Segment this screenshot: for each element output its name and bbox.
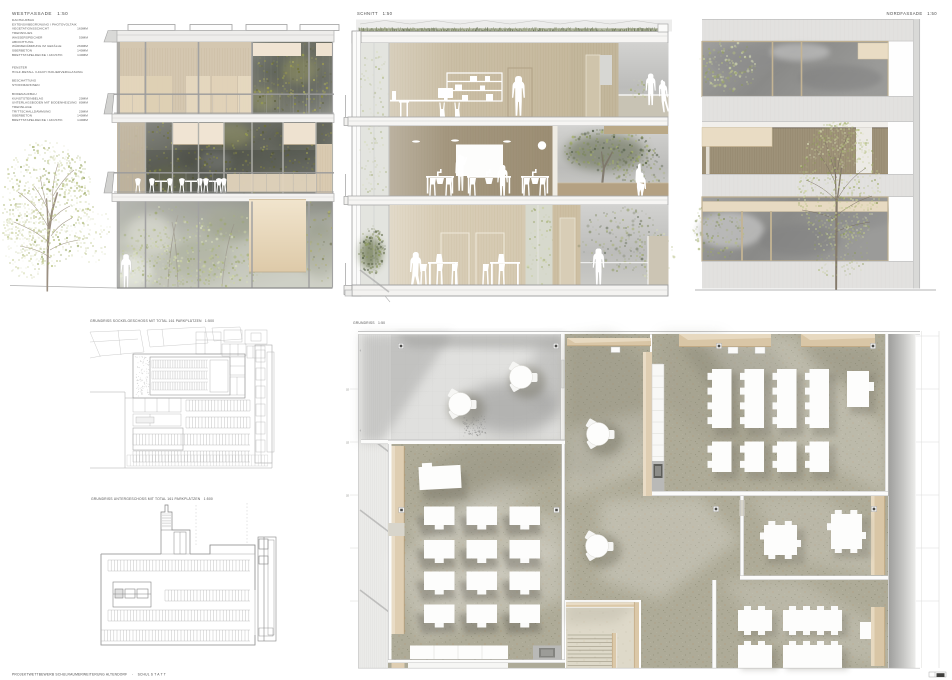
svg-text:VEGETATIONSSCHICHT: VEGETATIONSSCHICHT	[12, 27, 49, 31]
svg-text:20MM: 20MM	[79, 96, 88, 100]
svg-text:NORDFASSADE 1:50: NORDFASSADE 1:50	[887, 11, 938, 16]
svg-text:BRETTSTAPELDECKE / AKUSTIK: BRETTSTAPELDECKE / AKUSTIK	[12, 53, 64, 57]
svg-text:WESTFASSADE 1:50: WESTFASSADE 1:50	[12, 11, 68, 16]
svg-text:50MM: 50MM	[79, 35, 88, 39]
svg-text:DACHAUFBAU: DACHAUFBAU	[12, 18, 34, 22]
svg-text:260MM: 260MM	[77, 44, 88, 48]
svg-text:80MM: 80MM	[79, 101, 88, 105]
svg-text:160MM: 160MM	[77, 27, 88, 31]
svg-text:WASSERSPEICHER: WASSERSPEICHER	[12, 35, 43, 39]
svg-text:140MM: 140MM	[77, 114, 88, 118]
svg-text:SCHNITT 1:50: SCHNITT 1:50	[357, 11, 393, 16]
svg-text:BRETTSTAPELDECKE / AKUSTIK: BRETTSTAPELDECKE / AKUSTIK	[12, 118, 64, 122]
svg-text:WÄRMEDÄMMUNG IM GEFÄLLE: WÄRMEDÄMMUNG IM GEFÄLLE	[12, 44, 62, 48]
svg-text:ÜBERBETON: ÜBERBETON	[12, 114, 32, 118]
svg-text:HOLZ-METALL 3-FACH ISOLIERVERG: HOLZ-METALL 3-FACH ISOLIERVERGLASUNG	[12, 70, 83, 74]
svg-text:TRENNLAGE: TRENNLAGE	[12, 105, 32, 109]
svg-text:KUNSTSTEINBELAG: KUNSTSTEINBELAG	[12, 96, 44, 100]
svg-text:140MM: 140MM	[77, 118, 88, 122]
svg-text:140MM: 140MM	[77, 53, 88, 57]
svg-text:STOFFMARKISEN: STOFFMARKISEN	[12, 83, 40, 87]
